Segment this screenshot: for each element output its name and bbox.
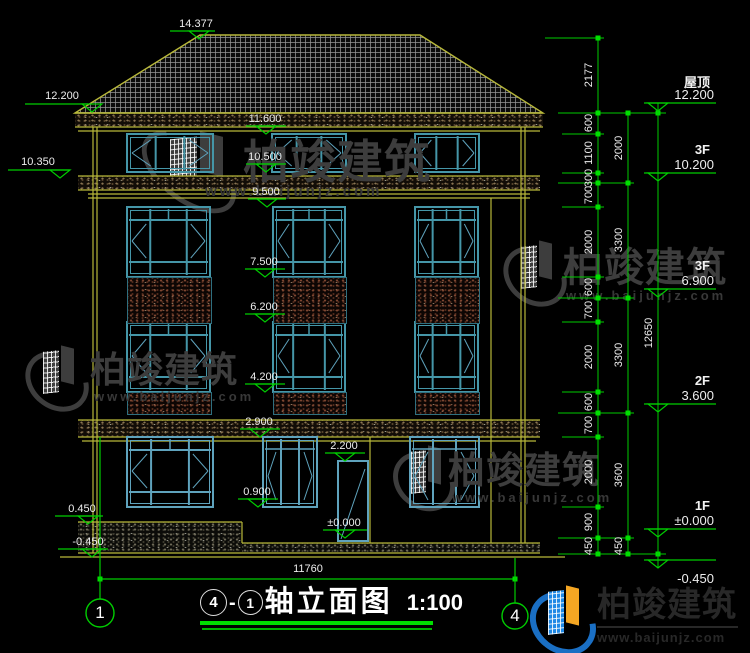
elevation-value: -0.450	[72, 536, 103, 548]
axis-number: 4	[510, 606, 519, 626]
elevation-value: 11.600	[249, 113, 282, 125]
elevation-value: 10.350	[21, 156, 55, 168]
elevation-triangle	[82, 104, 102, 112]
dim-label: 600	[583, 114, 595, 132]
dim-tick	[626, 296, 631, 301]
dim-label: 2000	[583, 345, 595, 369]
floor-elevation: 10.200	[674, 157, 714, 172]
elevation-triangle	[255, 384, 275, 392]
elevation-triangle	[257, 199, 277, 207]
dim-label: 2177	[583, 63, 595, 87]
floor-name: 1F	[695, 498, 710, 513]
title-underline	[200, 621, 433, 625]
brand-logo-url: www.baijunjz.com	[597, 626, 738, 645]
dim-tick	[596, 132, 601, 137]
axis-bubble-4: 4	[200, 589, 227, 616]
floor-name: 3F	[695, 142, 710, 157]
elevation-triangle	[255, 269, 275, 277]
dim-tick	[596, 275, 601, 280]
elevation-triangle	[189, 31, 209, 39]
title-text: 轴立面图	[265, 588, 393, 617]
dim-tick	[596, 435, 601, 440]
brand-logo-name: 柏竣建筑	[597, 588, 739, 622]
dim-label: 900	[583, 513, 595, 531]
floor-name: 3F	[695, 258, 710, 273]
elevation-triangle	[335, 453, 355, 461]
elevation-value: 2.200	[330, 440, 358, 452]
elevation-value: ±0.000	[327, 517, 361, 529]
dim-label: 700	[583, 301, 595, 319]
dim-label: 700	[583, 416, 595, 434]
dim-label: 450	[583, 537, 595, 555]
dimension-linework	[0, 0, 750, 653]
elevation-value: 2.900	[245, 416, 273, 428]
elevation-value: 9.500	[252, 186, 280, 198]
dim-tick	[626, 552, 631, 557]
title-scale: 1:100	[407, 592, 463, 614]
dim-tick	[596, 505, 601, 510]
brand-logo-icon	[531, 586, 589, 646]
dim-tick	[596, 296, 601, 301]
axis-bubble-1: 1	[238, 590, 263, 615]
dim-tick	[596, 411, 601, 416]
dim-tick	[596, 111, 601, 116]
dim-label: 3600	[613, 463, 625, 487]
dim-tick	[596, 171, 601, 176]
floor-elevation: -0.450	[677, 571, 714, 586]
dim-tick	[596, 320, 601, 325]
elevation-triangle	[250, 429, 270, 437]
dim-label: 2000	[583, 230, 595, 254]
dim-tick	[626, 181, 631, 186]
title-dash: -	[229, 593, 236, 613]
dim-label: 2000	[583, 460, 595, 484]
dim-label: 1100	[583, 141, 595, 165]
dim-label: 450	[613, 537, 625, 555]
elevation-triangle	[50, 170, 70, 178]
elevation-value: 12.200	[45, 90, 79, 102]
dim-tick	[626, 111, 631, 116]
floor-elevation: 6.900	[681, 273, 714, 288]
floor-elevation: 12.200	[674, 87, 714, 102]
floor-name: 2F	[695, 373, 710, 388]
elevation-value: 4.200	[250, 371, 278, 383]
dim-tick	[596, 390, 601, 395]
axis-number: 1	[95, 603, 104, 623]
elevation-value: 10.500	[248, 151, 282, 163]
dim-label: 300	[583, 169, 595, 187]
dim-label: 2000	[613, 136, 625, 160]
elevation-value: 0.450	[68, 503, 96, 515]
dim-label: 12650	[643, 318, 655, 349]
elevation-triangle	[78, 516, 98, 524]
dim-tick	[626, 411, 631, 416]
drawing-title: 4 - 1 轴立面图 1:100	[200, 588, 463, 617]
elevation-triangle	[82, 549, 102, 557]
dim-label: 700	[583, 186, 595, 204]
elevation-drawing-canvas: 柏竣建筑www.baijunjz.com柏竣建筑www.baijunjz.com…	[0, 0, 750, 653]
elevation-value: 0.900	[243, 486, 271, 498]
dim-tick	[596, 36, 601, 41]
dim-tick	[596, 205, 601, 210]
dim-tick	[596, 536, 601, 541]
elevation-triangle	[335, 530, 355, 538]
floor-elevation: 3.600	[681, 388, 714, 403]
elevation-triangle	[248, 499, 268, 507]
dim-tick	[626, 536, 631, 541]
dim-tick	[596, 181, 601, 186]
dim-tick	[596, 552, 601, 557]
elevation-triangle	[255, 314, 275, 322]
elevation-triangle	[256, 164, 276, 172]
dim-label: 3300	[613, 228, 625, 252]
floor-elevation: ±0.000	[674, 513, 714, 528]
elevation-value: 7.500	[250, 256, 278, 268]
overall-dim-value: 11760	[293, 563, 323, 575]
dim-label: 600	[583, 393, 595, 411]
dim-label: 3300	[613, 343, 625, 367]
dim-label: 600	[583, 278, 595, 296]
elevation-triangle	[256, 126, 276, 134]
elevation-value: 6.200	[250, 301, 278, 313]
title-underline-thin	[202, 628, 432, 630]
elevation-value: 14.377	[179, 18, 213, 30]
